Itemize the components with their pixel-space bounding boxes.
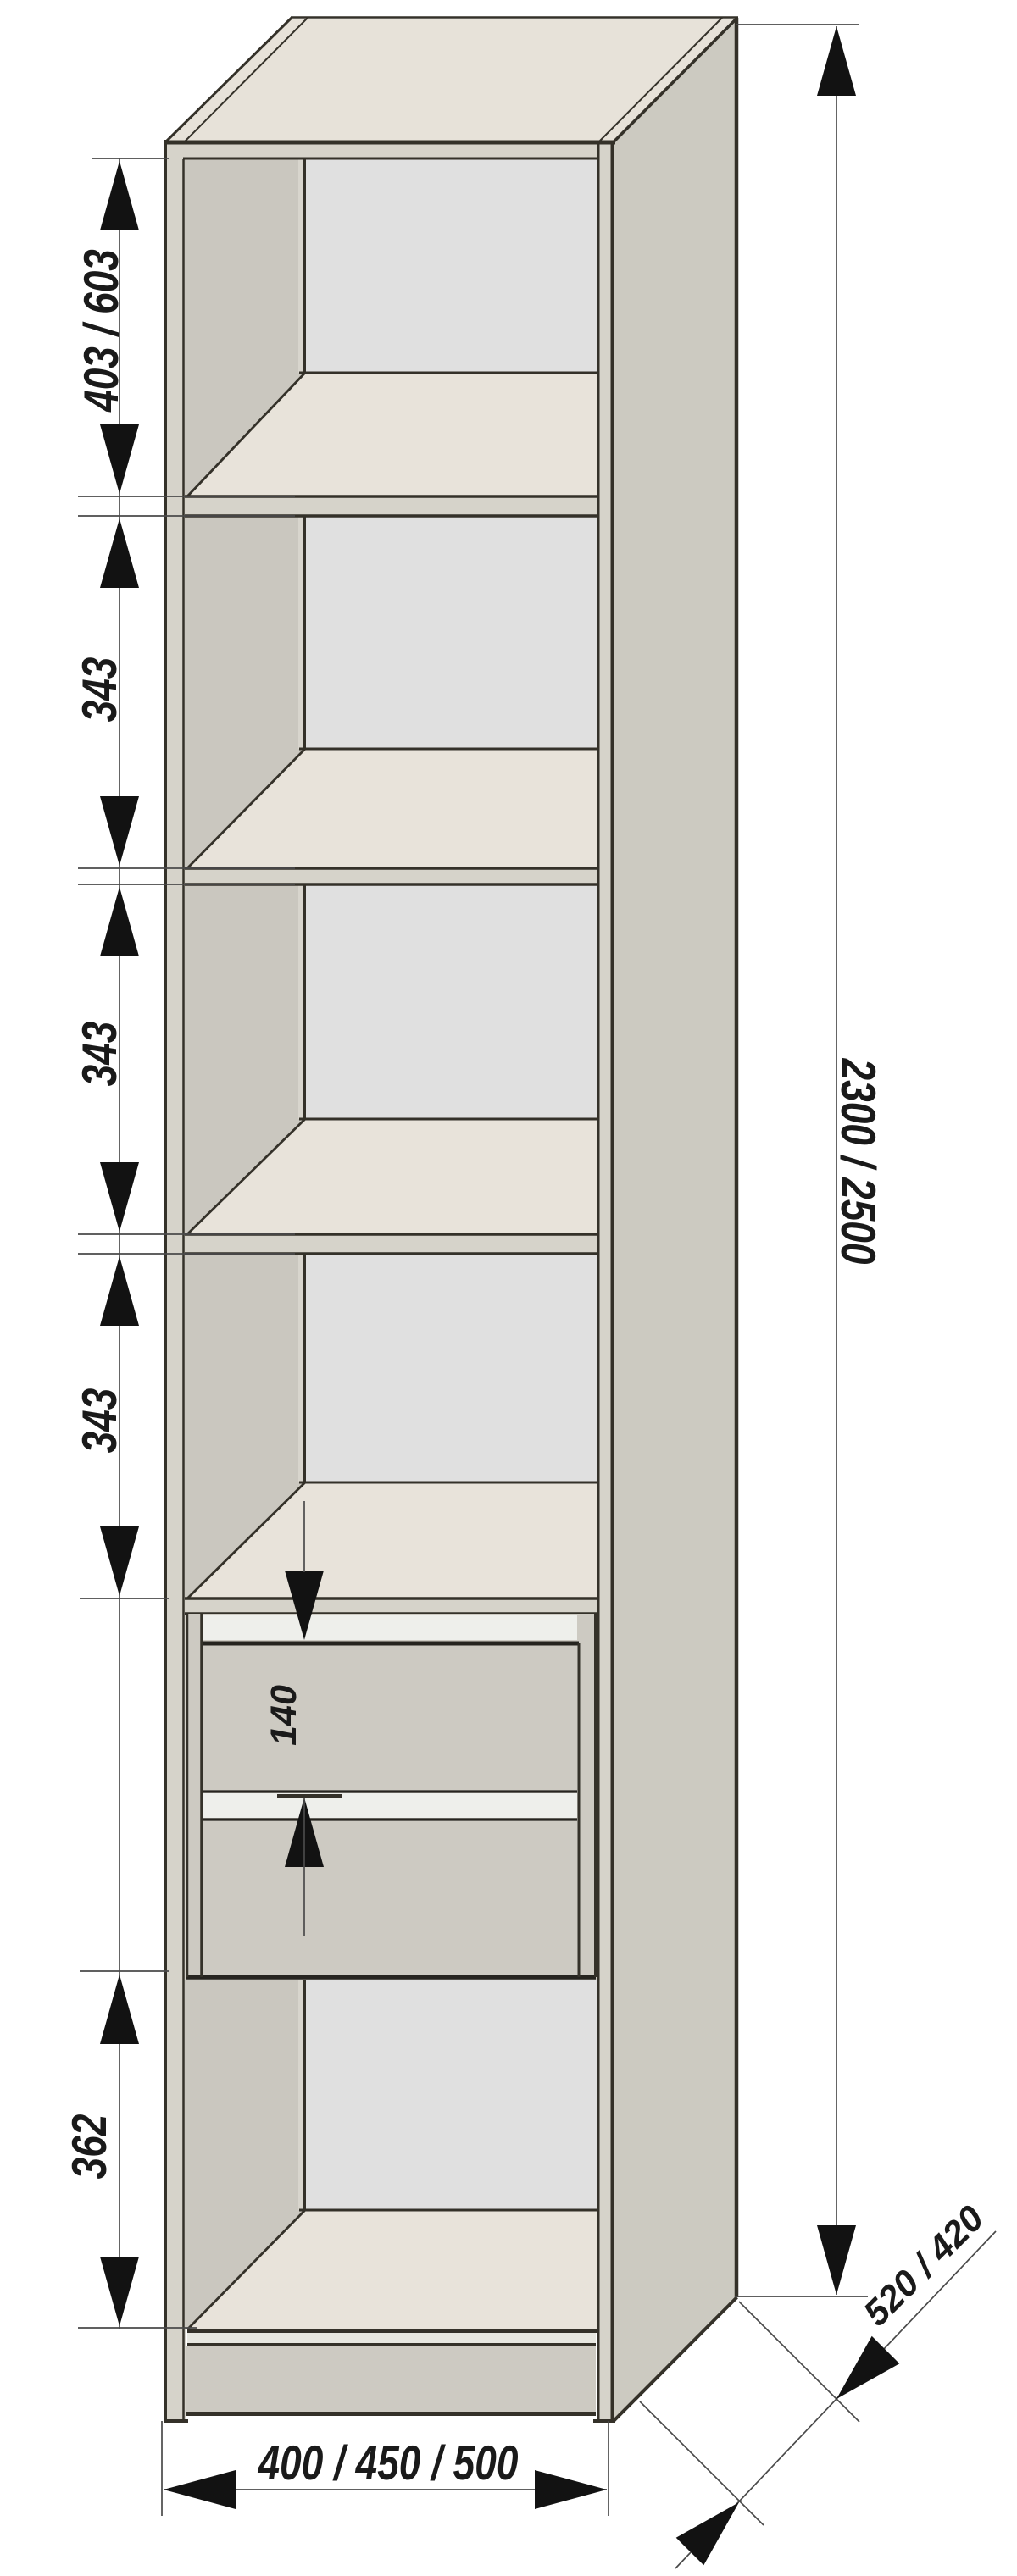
- svg-text:140: 140: [264, 1685, 304, 1746]
- svg-text:343: 343: [73, 1388, 127, 1454]
- svg-text:343: 343: [73, 1022, 127, 1087]
- svg-text:343: 343: [73, 657, 127, 723]
- svg-text:2300 / 2500: 2300 / 2500: [831, 1058, 885, 1265]
- svg-text:403 / 603: 403 / 603: [75, 249, 129, 413]
- svg-text:400 / 450 / 500: 400 / 450 / 500: [258, 2436, 519, 2490]
- svg-text:362: 362: [63, 2114, 117, 2180]
